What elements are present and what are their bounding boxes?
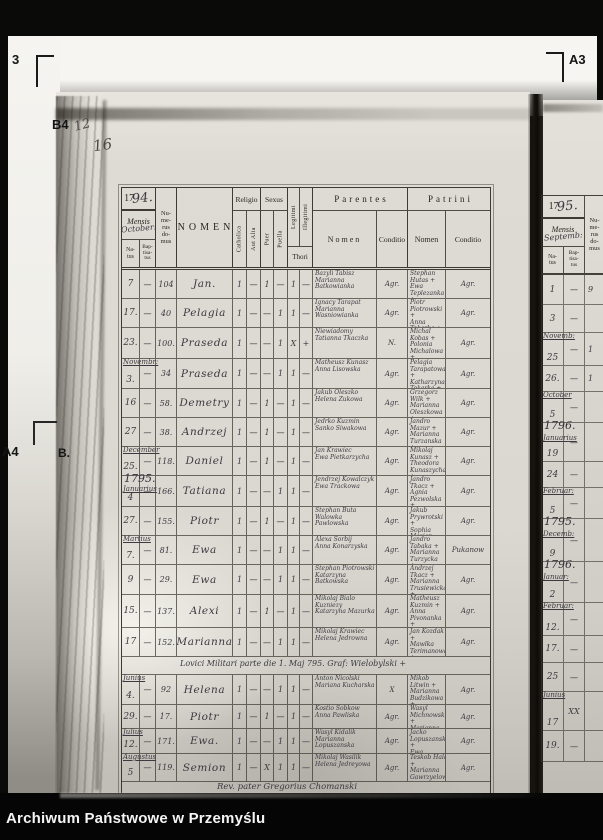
- mark-puella: 1: [274, 328, 288, 358]
- mark-puella: —: [274, 270, 288, 298]
- house-number: 137.: [156, 595, 177, 627]
- patrini-names: Grzegorz Wilk + Marianna Oleszkowa +: [408, 389, 446, 417]
- archive-caption: Archiwum Państwowe w Przemyślu: [6, 810, 265, 827]
- patrini-condition: Agr.: [446, 328, 490, 358]
- mark-puer: —: [261, 565, 274, 594]
- house-number: 152.: [156, 628, 177, 656]
- parents-names: Mikolaj Bialo Kuzniezy Katarzyna Mazurka: [313, 595, 377, 627]
- baptisatus-mark: —: [564, 731, 585, 761]
- next-page-row: 17.—: [542, 636, 603, 663]
- mark-legitimi: 1: [288, 705, 300, 728]
- parentes-nomen-header: Nomen: [313, 211, 377, 267]
- mark-catholica: 1: [233, 389, 247, 417]
- mark-catholica: 1: [233, 565, 247, 594]
- house-number: 171.: [156, 729, 177, 753]
- mark-aut-alia: —: [247, 359, 261, 388]
- next-page-row: 26.—1: [542, 366, 603, 392]
- mark-illegitimi: —: [300, 729, 313, 753]
- patrini-condition: Agr.: [446, 628, 490, 656]
- mark-illegitimi: —: [300, 628, 313, 656]
- baptisatus-mark: —: [140, 418, 156, 446]
- mark-puella: —: [274, 705, 288, 728]
- mark-puella: 1: [274, 729, 288, 753]
- patrini-condition: Agr.: [446, 447, 490, 475]
- parents-names: Mikolaj Krawiec Helena Jedrowna: [313, 628, 377, 656]
- next-year-box: 1795.: [542, 196, 585, 219]
- natus-day: 16: [122, 389, 140, 417]
- child-name: Marianna: [177, 628, 233, 656]
- register-row: 27—38.Andrzej1—1—1—Jedrko Kuzmin Sanko S…: [122, 418, 490, 447]
- year-handwritten: 94.: [131, 190, 153, 207]
- child-name: Tatiana: [177, 476, 233, 506]
- mark-catholica: 1: [233, 359, 247, 388]
- child-name: Alexi: [177, 595, 233, 627]
- puer-label: Puer: [264, 233, 270, 246]
- mark-catholica: 1: [233, 507, 247, 535]
- aut-alia-header: Aut Alia: [247, 211, 261, 267]
- patrini-names: Mikolaj Kunasz + Theodora Kunaszycha +: [408, 447, 446, 475]
- patrini-names: Jandro Tkacz + Agnia Pezwolska +: [408, 476, 446, 506]
- patrini-names: Jakub Prywrotski + Sophia Maziar Kuwinsk…: [408, 507, 446, 535]
- patrini-header: Patrini: [408, 188, 490, 211]
- mark-aut-alia: —: [247, 389, 261, 417]
- next-page-top-edge: [543, 104, 603, 112]
- mark-puer: 1: [261, 418, 274, 446]
- house-number: 40: [156, 299, 177, 327]
- child-name: Demetry: [177, 389, 233, 417]
- baptisatus-mark: —: [140, 628, 156, 656]
- sexus-header: Sexus: [261, 188, 288, 211]
- mark-catholica: 1: [233, 675, 247, 704]
- child-name: Jan.: [177, 270, 233, 298]
- natus-day: 17.: [542, 636, 564, 662]
- mark-puer: 1: [261, 447, 274, 475]
- next-page-header: 1795. Mensis Septemb: Na- tus Bap- tisa-…: [542, 196, 603, 275]
- house-number: 104: [156, 270, 177, 298]
- patrini-conditio-header: Conditio: [446, 211, 490, 267]
- parents-names: Anton Nicolski Mariana Kucharska: [313, 675, 377, 704]
- mark-puer: 1: [261, 270, 274, 298]
- page-top-edge: [56, 108, 530, 120]
- parents-names: Jendrzej Kowalczyk Ewa Trackowa: [313, 476, 377, 506]
- mark-puella: —: [274, 418, 288, 446]
- film-marker-a4: A4: [2, 444, 19, 459]
- mark-legitimi: 1: [288, 536, 300, 564]
- month-mark: Augustus: [123, 753, 156, 761]
- parents-names: Jedrko Kuzmin Sanko Siwakowa: [313, 418, 377, 446]
- mark-puella: —: [274, 447, 288, 475]
- parents-names: Matheusz Kunasz Anna Lisowska: [313, 359, 377, 388]
- patrini-names: Jandro Tabaka + Marianna Turzycka +: [408, 536, 446, 564]
- house-number: [585, 692, 603, 730]
- patrini-names: Andrzej Tkacz + Marianna Trusiewicka +: [408, 565, 446, 594]
- register-row: Julius12.—171.Ewa.1——11—Wasyl Kidalik Ma…: [122, 729, 490, 754]
- house-number: 34: [156, 359, 177, 388]
- house-number: [585, 519, 603, 561]
- parentes-conditio-header: Conditio: [377, 211, 408, 267]
- year-mark: 1796.: [544, 558, 576, 571]
- register-row: Martius7.—81.Ewa1——11—Alexa Sorbij Anna …: [122, 536, 490, 565]
- month-mark: Junius: [123, 674, 145, 682]
- natus-day: 17.: [122, 299, 140, 327]
- natus-day: 3: [542, 305, 564, 332]
- mark-puer: 1: [261, 595, 274, 627]
- register-row: 23.—100.Praseda1——1X+Niewiadomy Tatianna…: [122, 328, 490, 359]
- patrini-names: Jandro Mazur + Marianna Turzanska +: [408, 418, 446, 446]
- month-mark: December: [123, 446, 159, 454]
- baptisatus-mark: —: [140, 270, 156, 298]
- mark-puella: 1: [274, 675, 288, 704]
- house-number: [585, 462, 603, 487]
- mark-aut-alia: —: [247, 270, 261, 298]
- mark-puella: 1: [274, 536, 288, 564]
- priest-signature: Rev. pater Gregorius Chomanski: [217, 782, 357, 792]
- mark-puella: 1: [274, 754, 288, 781]
- month-mark: Februar:: [543, 602, 574, 610]
- house-number: [585, 636, 603, 662]
- register-row: 17.—40Pelagia1——11—Ignacy Tarapat Marian…: [122, 299, 490, 328]
- mark-catholica: 1: [233, 299, 247, 327]
- mark-illegitimi: —: [300, 754, 313, 781]
- house-number: 58.: [156, 389, 177, 417]
- register-row: 15.—137.Alexi1—1—1—Mikolaj Bialo Kuzniez…: [122, 595, 490, 628]
- register-row: 9—29.Ewa1——11—Stephan Piotrowski Katarzy…: [122, 565, 490, 595]
- parents-names: Stephan Buta Walowka Pawlowska: [313, 507, 377, 535]
- mark-catholica: 1: [233, 754, 247, 781]
- parents-condition: Agr.: [377, 705, 408, 728]
- mark-puer: —: [261, 536, 274, 564]
- numerus-domus-header: Nu- me- rus do- mus: [156, 188, 177, 267]
- parents-names: Ignacy Tarapat Marianna Wasniowianka: [313, 299, 377, 327]
- mark-catholica: 1: [233, 705, 247, 728]
- parentes-header: Parentes: [313, 188, 408, 211]
- mark-puer: 1: [261, 507, 274, 535]
- house-number: 92: [156, 675, 177, 704]
- mark-legitimi: 1: [288, 359, 300, 388]
- mark-legitimi: 1: [288, 270, 300, 298]
- month-mark: Martius: [123, 535, 151, 543]
- parents-names: Alexa Sorbij Anna Konarzyska: [313, 536, 377, 564]
- film-marker-a3: A3: [569, 52, 586, 67]
- register-body: 7—104Jan.1—1—1—Bazyli Tabisz Marianna Ba…: [122, 270, 490, 782]
- house-number: 17.: [156, 705, 177, 728]
- child-name: Praseda: [177, 328, 233, 358]
- mark-puella: —: [274, 507, 288, 535]
- legitimi-header: Legitimi: [288, 188, 300, 246]
- mark-illegitimi: —: [300, 476, 313, 506]
- month-mark: Februar:: [543, 487, 574, 495]
- year-mark: 1795.: [544, 515, 576, 528]
- mark-catholica: 1: [233, 729, 247, 753]
- mark-puer: —: [261, 299, 274, 327]
- mark-puella: 1: [274, 628, 288, 656]
- mark-aut-alia: —: [247, 729, 261, 753]
- mark-illegitimi: —: [300, 418, 313, 446]
- mark-legitimi: X: [288, 328, 300, 358]
- parents-condition: Agr.: [377, 389, 408, 417]
- month-mark: October: [543, 391, 572, 399]
- parents-condition: Agr.: [377, 595, 408, 627]
- mark-puer: —: [261, 628, 274, 656]
- mark-aut-alia: —: [247, 628, 261, 656]
- register-row: 27.—155.Piotr1—1—1—Stephan Buta Walowka …: [122, 507, 490, 536]
- corner-bracket-mid-left: [33, 421, 57, 445]
- house-number: [585, 488, 603, 518]
- mensis-handwritten: October:: [120, 222, 156, 234]
- parents-condition: Agr.: [377, 729, 408, 753]
- patrini-condition: Agr.: [446, 675, 490, 704]
- pencil-folio-16: 16: [92, 135, 113, 155]
- baptisatus-mark: —: [140, 299, 156, 327]
- year-mark: 1795.: [124, 472, 156, 485]
- parents-condition: Agr.: [377, 507, 408, 535]
- month-mark: Novembr:: [123, 358, 158, 366]
- next-natus-header: Na- tus: [542, 247, 564, 273]
- puella-header: Puella: [274, 211, 288, 267]
- aut-alia-label: Aut Alia: [251, 227, 257, 251]
- parents-condition: Agr.: [377, 270, 408, 298]
- house-number: [585, 423, 603, 461]
- parents-condition: Agr.: [377, 447, 408, 475]
- next-mensis-handwritten: Septemb:: [543, 230, 582, 242]
- natus-day: 26.: [542, 366, 564, 391]
- baptisatus-mark: —: [140, 507, 156, 535]
- mark-illegitimi: —: [300, 270, 313, 298]
- patrini-names: Mikob Litwin + Marianna Budzikowa +: [408, 675, 446, 704]
- register-row: 17—152.Marianna1——11—Mikolaj Krawiec Hel…: [122, 628, 490, 657]
- month-mark: Januar:: [543, 573, 569, 581]
- child-name: Ewa: [177, 536, 233, 564]
- parents-condition: Agr.: [377, 536, 408, 564]
- microfilm-scan: 3 A3 B4 A4 B. 12 16 1794. Mensis October…: [0, 0, 603, 840]
- house-number: 9: [585, 275, 603, 304]
- mark-aut-alia: —: [247, 595, 261, 627]
- baptisatus-mark: —: [564, 305, 585, 332]
- illegitimi-label: Illegitimi: [303, 204, 309, 230]
- mark-legitimi: 1: [288, 675, 300, 704]
- next-numerus-header: Nu- me- rus do- mus: [585, 196, 603, 273]
- child-name: Semion: [177, 754, 233, 781]
- baptisatus-mark: —: [140, 705, 156, 728]
- mark-puer: —: [261, 729, 274, 753]
- mark-catholica: 1: [233, 447, 247, 475]
- mark-illegitimi: +: [300, 328, 313, 358]
- natus-day: 25: [542, 663, 564, 691]
- house-number: [585, 562, 603, 602]
- register-annotation-row: Lovici Militari parte die 1. Maj 795. Gr…: [122, 657, 490, 675]
- next-baptisatus-header: Bap- tisa- tus: [564, 247, 585, 273]
- month-mark: Decemb:: [543, 530, 574, 538]
- patrini-names: Teskob Halat + Marianna Gawrzyelowa +: [408, 754, 446, 781]
- natus-day: 24: [542, 462, 564, 487]
- mark-illegitimi: —: [300, 299, 313, 327]
- baptisatus-mark: —: [564, 636, 585, 662]
- child-name: Pelagia: [177, 299, 233, 327]
- patrini-names: Matheusz Kuzmin + Anna Pivonanka +: [408, 595, 446, 627]
- mark-puella: 1: [274, 299, 288, 327]
- child-name: Piotr: [177, 507, 233, 535]
- mark-aut-alia: —: [247, 299, 261, 327]
- child-name: Piotr: [177, 705, 233, 728]
- patrini-condition: Agr.: [446, 507, 490, 535]
- mark-illegitimi: —: [300, 359, 313, 388]
- mark-puer: —: [261, 328, 274, 358]
- film-marker-b4: B4: [52, 117, 69, 132]
- patrini-names: Wasyl Michnowski + Marianna Sobkowa +: [408, 705, 446, 728]
- next-page-row: Februar:12.—: [542, 603, 603, 636]
- mark-puella: 1: [274, 565, 288, 594]
- mark-legitimi: 1: [288, 628, 300, 656]
- nomen-header: NOMEN: [177, 188, 233, 267]
- mark-puer: X: [261, 754, 274, 781]
- mark-legitimi: 1: [288, 476, 300, 506]
- baptisatus-mark: —: [140, 389, 156, 417]
- mark-aut-alia: —: [247, 447, 261, 475]
- house-number: 100.: [156, 328, 177, 358]
- register-row: 1795.Januarius4—166.Tatiana1——11—Jendrze…: [122, 476, 490, 507]
- patrini-names: Pelagia Tarapatowa + Katharzyna Tokarka …: [408, 359, 446, 388]
- next-page-row: 1—9: [542, 275, 603, 305]
- mark-aut-alia: —: [247, 418, 261, 446]
- child-name: Ewa.: [177, 729, 233, 753]
- mark-aut-alia: —: [247, 565, 261, 594]
- mark-puella: 1: [274, 476, 288, 506]
- mark-aut-alia: —: [247, 675, 261, 704]
- parents-names: Mikolaj Wasilik Helena Jedreyowa: [313, 754, 377, 781]
- month-mark: Novemb:: [543, 332, 575, 340]
- baptisatus-mark: —: [564, 663, 585, 691]
- baptisatus-mark: —: [140, 328, 156, 358]
- next-year-handwritten: 95.: [556, 198, 578, 215]
- puella-label: Puella: [278, 230, 284, 247]
- natus-day: 27.: [122, 507, 140, 535]
- mark-catholica: 1: [233, 476, 247, 506]
- year-box: 1794.: [122, 188, 156, 211]
- next-page-row: 1795.Decemb:9—: [542, 519, 603, 562]
- corner-bracket-top-right: [546, 52, 564, 82]
- thori-header: Thori: [288, 246, 313, 267]
- next-page-row: Junius17XX: [542, 692, 603, 731]
- parents-condition: Agr.: [377, 476, 408, 506]
- next-page-row: 24—: [542, 462, 603, 488]
- house-number: [585, 392, 603, 422]
- natus-day: 15.: [122, 595, 140, 627]
- register-row: Junius4.—92Helena1——11—Anton Nicolski Ma…: [122, 675, 490, 705]
- natus-day: 29.: [122, 705, 140, 728]
- child-name: Praseda: [177, 359, 233, 388]
- parents-names: Bazyli Tabisz Marianna Batkowianka: [313, 270, 377, 298]
- mark-puer: —: [261, 359, 274, 388]
- mark-catholica: 1: [233, 536, 247, 564]
- page-bottom-edge: [60, 793, 560, 798]
- corner-bracket-top-left: [36, 55, 54, 87]
- patrini-names: Jacko Lopuszanski + Ewa Kidalikowa +: [408, 729, 446, 753]
- house-number: 1: [585, 366, 603, 391]
- house-number: 81.: [156, 536, 177, 564]
- mark-catholica: 1: [233, 595, 247, 627]
- parents-names: Stephan Piotrowski Katarzyna Batkowska: [313, 565, 377, 594]
- parents-condition: Agr.: [377, 754, 408, 781]
- catholica-header: Catholica: [233, 211, 247, 267]
- mark-aut-alia: —: [247, 705, 261, 728]
- mark-legitimi: 1: [288, 595, 300, 627]
- mark-catholica: 1: [233, 418, 247, 446]
- mark-aut-alia: —: [247, 507, 261, 535]
- mark-legitimi: 1: [288, 565, 300, 594]
- patrini-condition: Agr.: [446, 359, 490, 388]
- patrini-condition: Agr.: [446, 389, 490, 417]
- house-number: 166.: [156, 476, 177, 506]
- next-page-row: 25—: [542, 663, 603, 692]
- baptisatus-mark: XX: [564, 692, 585, 730]
- child-name: Daniel: [177, 447, 233, 475]
- patrini-condition: Agr.: [446, 754, 490, 781]
- next-page-table: 1795. Mensis Septemb: Na- tus Bap- tisa-…: [541, 195, 603, 762]
- next-page-body: 1—93—Novemb:25—126.—1October5—1796.Janua…: [542, 275, 603, 762]
- mark-legitimi: 1: [288, 418, 300, 446]
- mark-puer: —: [261, 476, 274, 506]
- next-page-row: 19.—: [542, 731, 603, 762]
- next-page-row: 3—: [542, 305, 603, 333]
- house-number: 29.: [156, 565, 177, 594]
- patrini-names: Michal Kobas + Polonia Michalowa +: [408, 328, 446, 358]
- natus-day: 19.: [542, 731, 564, 761]
- baptism-register-table: 1794. Mensis October: Na- tus Bap- tisa-…: [121, 187, 491, 796]
- parents-names: Jakub Oleszko Helena Zukowa: [313, 389, 377, 417]
- house-number: 119.: [156, 754, 177, 781]
- child-name: Helena: [177, 675, 233, 704]
- baptisatus-mark: —: [140, 595, 156, 627]
- child-name: Ewa: [177, 565, 233, 594]
- mark-legitimi: 1: [288, 507, 300, 535]
- patrini-condition: Agr.: [446, 270, 490, 298]
- mark-puer: —: [261, 675, 274, 704]
- next-mensis-header: Mensis Septemb:: [542, 219, 585, 247]
- illegitimi-header: Illegitimi: [300, 188, 313, 246]
- house-number: [585, 663, 603, 691]
- natus-header: Na- tus: [122, 240, 140, 267]
- patrini-nomen-header: Nomen: [408, 211, 446, 267]
- baptisatus-mark: —: [564, 462, 585, 487]
- patrini-condition: Agr.: [446, 705, 490, 728]
- mark-legitimi: 1: [288, 447, 300, 475]
- month-mark: Januarius: [123, 485, 157, 493]
- film-left-margin: [8, 36, 60, 793]
- year-mark: 1796.: [544, 419, 576, 432]
- natus-day: 17: [122, 628, 140, 656]
- patrini-names: Piotr Piotrowski + Anna Tokarka +: [408, 299, 446, 327]
- patrini-names: Stephan Hutas + Ewa Teplezanka +: [408, 270, 446, 298]
- annotation-text: Lovici Militari parte die 1. Maj 795. Gr…: [180, 659, 406, 668]
- mark-legitimi: 1: [288, 729, 300, 753]
- next-page-row: 1796.Januar:2—: [542, 562, 603, 603]
- baptisatus-mark: —: [564, 275, 585, 304]
- mark-puella: 1: [274, 359, 288, 388]
- mark-puella: —: [274, 595, 288, 627]
- natus-day: 1: [542, 275, 564, 304]
- mark-aut-alia: —: [247, 754, 261, 781]
- house-number: [585, 305, 603, 332]
- mark-puer: 1: [261, 705, 274, 728]
- patrini-condition: Agr.: [446, 729, 490, 753]
- baptisatus-mark: —: [564, 366, 585, 391]
- house-number: [585, 603, 603, 635]
- house-number: 38.: [156, 418, 177, 446]
- mark-illegitimi: —: [300, 507, 313, 535]
- month-mark: Julius: [123, 728, 143, 736]
- parents-condition: X: [377, 675, 408, 704]
- natus-day: 9: [122, 565, 140, 594]
